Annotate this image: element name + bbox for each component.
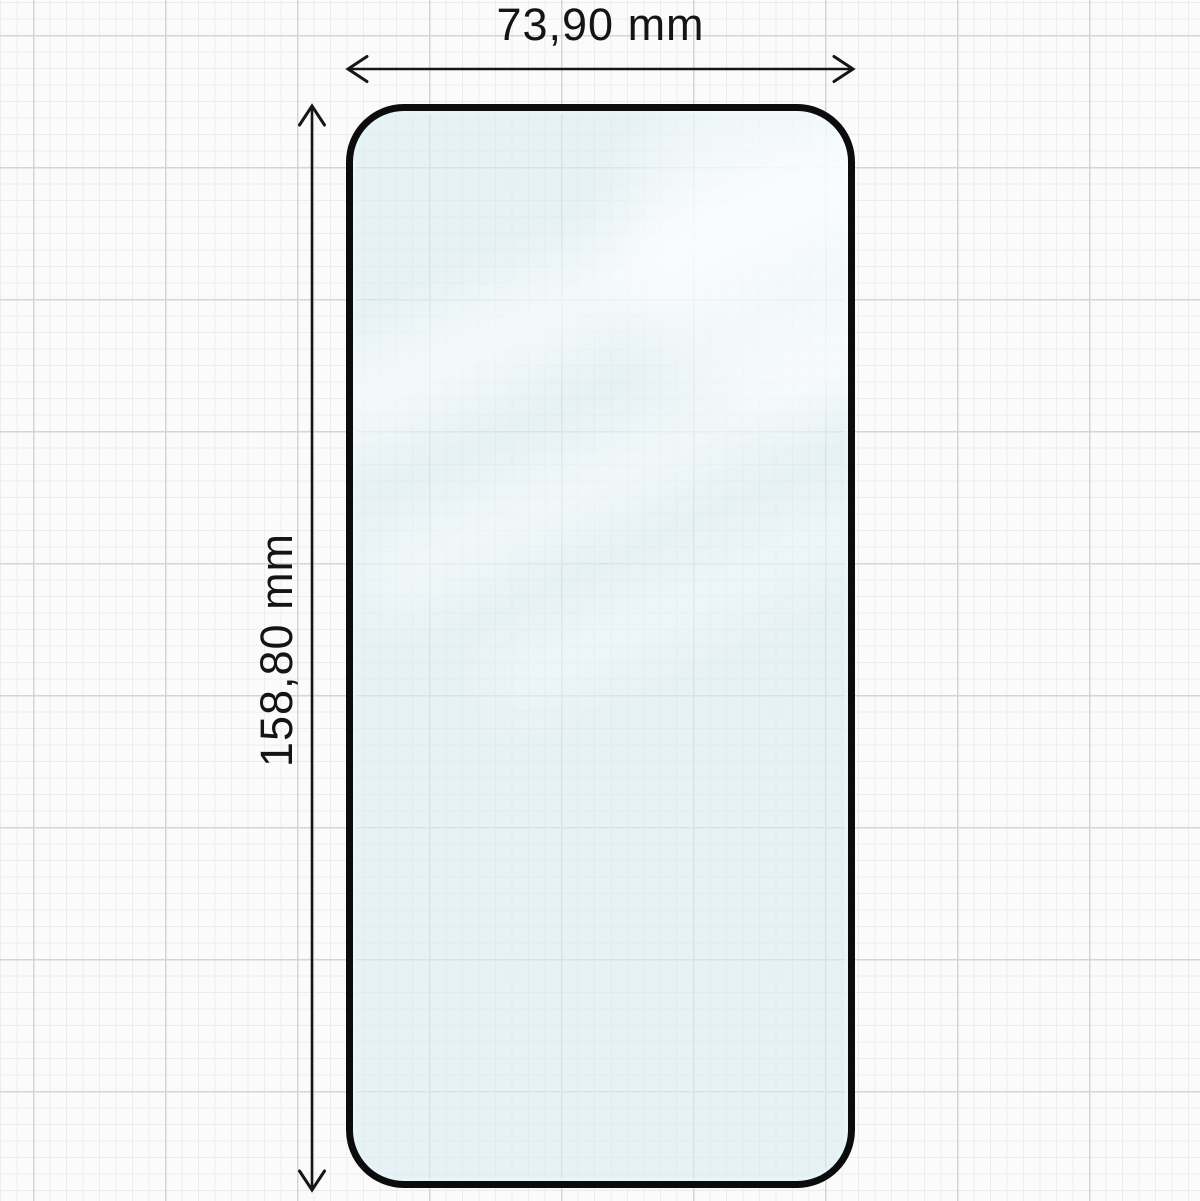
width-dimension-label: 73,90 mm <box>346 1 855 49</box>
arrow-right-icon <box>834 57 853 82</box>
screen-protector-outline <box>346 104 855 1188</box>
arrow-up-icon <box>300 106 325 125</box>
arrow-left-icon <box>348 57 367 82</box>
graph-paper-canvas: 73,90 mm 158,80 mm <box>0 0 1200 1201</box>
height-dimension-label: 158,80 mm <box>253 533 301 767</box>
glass-reflection-streak <box>360 266 855 617</box>
width-dimension <box>348 57 853 82</box>
arrow-down-icon <box>300 1171 325 1190</box>
height-dimension <box>300 106 325 1190</box>
glass-reflection-streak <box>346 110 855 458</box>
glass-reflection-streak <box>487 425 855 716</box>
glass-reflection-cloud <box>623 104 855 411</box>
